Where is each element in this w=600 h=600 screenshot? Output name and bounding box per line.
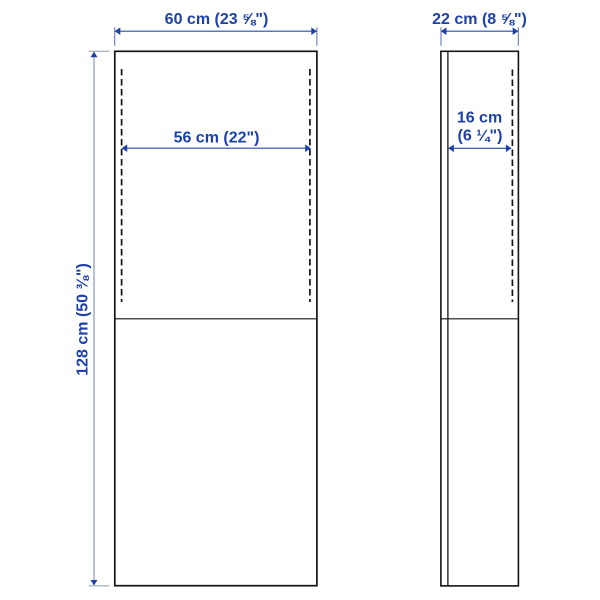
svg-text:56 cm (22"): 56 cm (22"): [174, 129, 260, 146]
svg-text:128 cm (50 ⅜"): 128 cm (50 ⅜"): [75, 263, 92, 376]
svg-text:(6 ¼"): (6 ¼"): [458, 127, 503, 144]
svg-text:22 cm (8 ⅝"): 22 cm (8 ⅝"): [432, 11, 527, 28]
svg-text:16 cm: 16 cm: [457, 110, 502, 127]
svg-text:60 cm (23 ⅝"): 60 cm (23 ⅝"): [165, 11, 269, 28]
